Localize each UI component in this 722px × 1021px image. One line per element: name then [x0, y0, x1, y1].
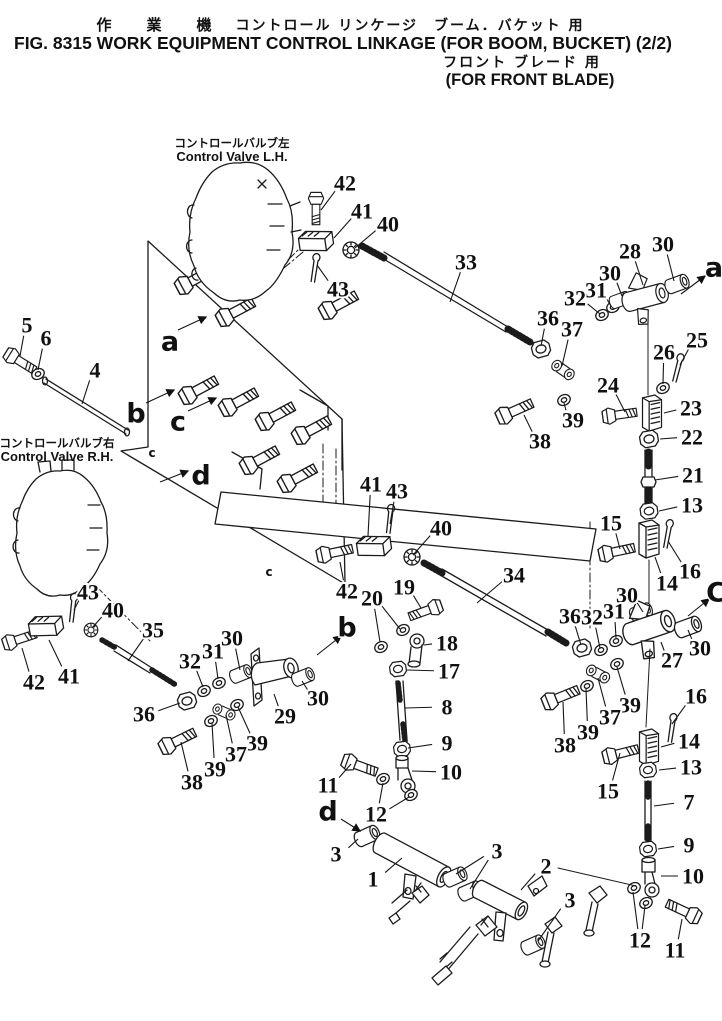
path-shape	[114, 645, 152, 673]
callout-38: 38	[524, 415, 551, 454]
part-number-label: 32	[179, 649, 201, 674]
path-shape	[189, 162, 293, 301]
view-letter-label: b	[126, 399, 145, 430]
callout-leader	[633, 892, 638, 929]
part-number-label: 11	[665, 938, 686, 963]
callout-39: 39	[562, 403, 584, 433]
valve-rh-label-jp: コントロールバルブ右	[0, 436, 115, 450]
view-arrow-icon	[146, 390, 174, 403]
valve-lh-label-jp: コントロールバルブ左	[175, 136, 290, 150]
callout-leader	[22, 648, 29, 672]
callout-36: 36	[133, 702, 180, 727]
part-number-label: 35	[142, 618, 164, 643]
view-arrow-icon	[178, 317, 206, 330]
callout-9: 9	[658, 833, 695, 858]
callout-4: 4	[82, 358, 101, 405]
callout-leader	[596, 628, 600, 648]
callout-leader	[663, 363, 664, 384]
use-shape	[343, 242, 359, 258]
callout-leader	[407, 670, 434, 671]
part-number-label: 31	[603, 599, 625, 624]
use-shape	[663, 895, 703, 926]
part-number-label: 24	[597, 373, 619, 398]
use-shape	[315, 540, 354, 564]
rod-33-group	[298, 192, 530, 342]
part-number-label: 40	[102, 598, 124, 623]
part-number-label: 16	[685, 684, 707, 709]
path-shape	[16, 470, 108, 596]
path-shape	[440, 927, 478, 972]
use-shape	[196, 683, 212, 698]
part-number-label: 12	[365, 802, 387, 827]
part-number-label: 32	[581, 605, 603, 630]
use-shape	[238, 442, 282, 477]
part-number-label: 39	[619, 693, 641, 718]
use-shape	[519, 933, 547, 956]
use-shape	[639, 430, 660, 449]
callout-31: 31	[603, 599, 625, 639]
use-shape	[593, 642, 609, 657]
part-number-label: 20	[361, 586, 383, 611]
part-number-label: 40	[377, 212, 399, 237]
callout-5: 5	[20, 313, 33, 357]
part-number-label: 38	[554, 733, 576, 758]
use-shape	[340, 752, 380, 780]
view-letter-b: b	[317, 613, 357, 656]
control-valve-rh-drawing	[13, 460, 150, 641]
part-number-label: 18	[436, 631, 458, 656]
callout-leader	[238, 707, 250, 733]
part-number-label: 7	[684, 790, 695, 815]
use-shape	[217, 384, 261, 419]
path-shape	[558, 868, 636, 886]
callout-36: 36	[537, 306, 559, 347]
use-shape	[579, 678, 595, 693]
part-number-label: 3	[331, 842, 342, 867]
callout-10: 10	[412, 760, 462, 785]
part-number-label: 12	[629, 928, 651, 953]
use-shape	[663, 273, 691, 295]
use-shape	[389, 661, 407, 678]
callout-37: 37	[225, 715, 247, 767]
use-shape	[556, 392, 572, 407]
part-number-label: 5	[22, 313, 33, 338]
use-shape	[639, 762, 657, 779]
use-shape	[228, 663, 254, 684]
part-number-label: 30	[221, 626, 243, 651]
part-number-label: 10	[682, 864, 704, 889]
ellipse-shape	[642, 858, 655, 863]
part-number-label: 30	[689, 636, 711, 661]
use-shape	[609, 656, 625, 671]
use-shape	[176, 691, 198, 711]
callout-43: 43	[317, 265, 349, 302]
part-number-label: 6	[41, 326, 52, 351]
path-shape	[398, 768, 412, 780]
callout-leader	[389, 797, 409, 809]
path-shape	[382, 252, 508, 332]
callout-leader	[334, 219, 351, 238]
callout-43: 43	[74, 580, 99, 611]
callout-3: 3	[331, 839, 359, 867]
path-shape	[589, 886, 607, 903]
callout-13: 13	[659, 493, 703, 518]
view-letter-label: d	[191, 461, 210, 492]
path-shape	[389, 913, 400, 924]
callout-leader	[477, 582, 502, 603]
callout-7: 7	[654, 790, 695, 815]
part-number-label: 33	[455, 250, 477, 275]
part-number-label: 14	[678, 729, 700, 754]
callout-leader	[236, 649, 240, 670]
use-shape	[494, 395, 536, 427]
use-shape	[254, 398, 298, 433]
part-number-label: 36	[537, 306, 559, 331]
part-number-label: 15	[597, 779, 619, 804]
use-shape	[308, 192, 323, 224]
part-number-label: 19	[393, 575, 415, 600]
part-number-label: 15	[600, 511, 622, 536]
part-number-label: 26	[653, 340, 675, 365]
part-number-label: 10	[440, 760, 462, 785]
use-shape	[407, 597, 445, 624]
use-shape	[571, 638, 593, 658]
part-number-label: 11	[318, 773, 339, 798]
callout-leader	[82, 380, 90, 404]
callout-23: 23	[664, 396, 702, 421]
tiny-ref-mark: c	[148, 446, 155, 460]
callout-leader	[38, 349, 42, 370]
callout-37: 37	[561, 317, 583, 367]
callout-leader	[216, 662, 218, 679]
part-number-label: 41	[351, 199, 373, 224]
use-shape	[404, 549, 420, 565]
callout-37: 37	[598, 678, 621, 730]
part-number-label: 41	[360, 472, 382, 497]
callout-26: 26	[653, 340, 675, 385]
part-number-label: 4	[90, 358, 101, 383]
callout-leader	[408, 744, 432, 748]
exploded-parts-diagram: 作 業 機 コントロール リンケージ ブーム．バケット 用 FIG. 8315 …	[0, 0, 722, 1021]
path-shape	[548, 632, 566, 643]
part-number-label: 16	[679, 559, 701, 584]
callout-leader	[158, 703, 180, 711]
part-number-label: 37	[225, 742, 247, 767]
callout-13: 13	[659, 755, 702, 780]
part-number-label: 41	[58, 664, 80, 689]
ellipse-shape	[408, 661, 420, 667]
callout-leader	[660, 438, 677, 439]
path-shape	[44, 379, 128, 434]
callout-leader	[661, 743, 674, 747]
callout-leader	[382, 606, 400, 629]
view-letter-d: d	[160, 461, 211, 492]
part-number-label: 8	[442, 695, 453, 720]
callout-9: 9	[408, 731, 453, 756]
callout-30: 30	[221, 626, 243, 671]
callout-27: 27	[661, 642, 683, 673]
callout-22: 22	[660, 425, 703, 450]
callout-leader	[642, 906, 645, 929]
callout-39: 39	[577, 689, 599, 745]
callout-leader	[659, 768, 676, 770]
part-number-label: 13	[681, 493, 703, 518]
part-number-label: 37	[561, 317, 583, 342]
callout-leader	[412, 771, 436, 772]
use-shape	[639, 502, 658, 519]
part-number-label: 39	[246, 731, 268, 756]
part-number-label: 30	[652, 232, 674, 257]
part-number-label: 36	[559, 604, 581, 629]
use-shape	[639, 520, 659, 558]
callout-42: 42	[336, 562, 358, 604]
path-shape	[424, 563, 442, 573]
view-letter-label: a	[705, 253, 722, 284]
part-number-label: 43	[327, 277, 349, 302]
callout-leader	[49, 640, 62, 666]
callout-leader	[667, 255, 674, 281]
view-letter-d: d	[318, 797, 360, 832]
header: 作 業 機 コントロール リンケージ ブーム．バケット 用 FIG. 8315 …	[14, 16, 672, 89]
callout-3: 3	[538, 888, 576, 942]
use-shape	[616, 267, 674, 329]
part-number-label: 2	[541, 854, 552, 879]
callout-leader	[456, 856, 484, 874]
part-number-label: 23	[680, 396, 702, 421]
part-number-label: 9	[442, 731, 453, 756]
callout-29: 29	[274, 694, 296, 729]
use-shape	[203, 713, 219, 728]
callout-39: 39	[204, 723, 226, 782]
use-shape	[393, 741, 411, 758]
callout-leader	[181, 742, 188, 771]
callout-leader	[617, 667, 625, 695]
part-number-label: 38	[529, 429, 551, 454]
callout-41: 41	[334, 199, 373, 239]
part-number-label: 42	[336, 579, 358, 604]
valve-lh-label-en: Control Valve L.H.	[176, 149, 287, 164]
tiny-ref-mark: c	[265, 565, 272, 579]
callout-30: 30	[652, 232, 674, 282]
use-shape	[638, 895, 654, 910]
callout-leader	[424, 644, 432, 645]
callout-leader	[678, 919, 682, 939]
part-number-label: 39	[204, 757, 226, 782]
part-number-label: 39	[562, 408, 584, 433]
callout-14: 14	[655, 557, 678, 596]
part-number-label: 36	[133, 702, 155, 727]
valve-rh-label-en: Control Valve R.H.	[1, 449, 114, 464]
callout-38: 38	[554, 702, 576, 758]
path-shape	[362, 246, 384, 258]
part-number-label: 9	[684, 833, 695, 858]
callout-leader	[654, 803, 674, 806]
callout-leader	[588, 304, 600, 314]
part-number-label: 43	[386, 479, 408, 504]
circle-shape	[645, 883, 659, 897]
callout-leader	[20, 336, 24, 356]
callout-leader	[664, 410, 676, 413]
path-shape	[645, 872, 655, 884]
callout-10: 10	[661, 864, 704, 889]
path-shape	[432, 966, 452, 985]
view-letter-b: b	[126, 390, 174, 430]
callout-41: 41	[49, 640, 80, 689]
path-shape	[646, 649, 650, 727]
part-number-label: 29	[274, 704, 296, 729]
use-shape	[540, 681, 582, 712]
use-shape	[298, 228, 335, 255]
use-shape	[157, 724, 199, 757]
rod-4-group	[1, 345, 129, 436]
view-letter-label: C	[706, 578, 722, 609]
path-shape	[102, 640, 116, 648]
callout-30: 30	[302, 681, 329, 711]
part-number-label: 21	[682, 463, 704, 488]
part-number-label: 3	[492, 839, 503, 864]
ellipse-shape	[396, 756, 408, 761]
callout-21: 21	[655, 463, 704, 488]
callout-leader	[379, 783, 383, 803]
callout-15: 15	[600, 511, 622, 550]
callout-11: 11	[665, 919, 686, 963]
use-shape	[373, 639, 389, 654]
callout-19: 19	[393, 575, 421, 609]
part-number-label: 17	[438, 659, 460, 684]
part-number-label: 14	[656, 571, 678, 596]
use-shape	[84, 623, 98, 637]
callout-leader	[655, 476, 678, 480]
callout-leader	[562, 340, 568, 366]
callout-leader	[212, 723, 214, 758]
callout-14: 14	[661, 729, 700, 754]
part-number-label: 22	[681, 425, 703, 450]
callout-leader	[659, 507, 677, 511]
use-shape	[640, 729, 659, 765]
part-number-label: 37	[599, 705, 621, 730]
path-shape	[152, 670, 176, 685]
ellipse-shape	[540, 961, 550, 967]
part-number-label: 39	[577, 720, 599, 745]
view-letter-label: a	[161, 327, 179, 358]
ellipse-shape	[584, 930, 594, 936]
view-letter-a: a	[161, 317, 206, 358]
use-shape	[660, 519, 674, 548]
view-letter-c: c	[170, 398, 216, 438]
part-number-label: 38	[181, 770, 203, 795]
part-number-label: 32	[564, 286, 586, 311]
parts-catalog-page: 作 業 機 コントロール リンケージ ブーム．バケット 用 FIG. 8315 …	[0, 0, 722, 1021]
use-shape	[665, 713, 678, 742]
view-arrow-icon	[341, 819, 360, 831]
callout-leader	[375, 609, 380, 642]
part-number-label: 42	[23, 670, 45, 695]
part-number-label: 3	[565, 888, 576, 913]
title-jp-linkage: コントロール リンケージ ブーム．バケット 用	[235, 17, 584, 34]
path-shape	[586, 902, 598, 932]
part-number-label: 34	[503, 563, 525, 588]
part-number-label: 28	[619, 239, 641, 264]
callout-32: 32	[179, 649, 203, 688]
part-number-label: 42	[334, 171, 356, 196]
use-shape	[601, 741, 640, 766]
use-shape	[276, 460, 320, 495]
callout-38: 38	[181, 742, 203, 795]
part-number-label: 27	[661, 648, 683, 673]
callout-34: 34	[477, 563, 525, 604]
subtitle-en: (FOR FRONT BLADE)	[446, 71, 615, 89]
callout-leader	[405, 707, 432, 708]
title-jp-machine: 作 業 機	[96, 16, 221, 34]
use-shape	[27, 612, 64, 640]
part-number-label: 25	[686, 328, 708, 353]
path-shape	[641, 477, 656, 487]
path-shape	[440, 569, 548, 636]
use-shape	[643, 395, 662, 431]
callout-6: 6	[38, 326, 52, 371]
part-number-label: 30	[307, 686, 329, 711]
part-number-label: 31	[585, 278, 607, 303]
view-letter-label: c	[170, 407, 186, 438]
subtitle-jp: フロント ブレード 用	[443, 54, 601, 71]
control-valve-lh-drawing	[187, 162, 305, 301]
callout-18: 18	[424, 631, 458, 656]
use-shape	[290, 412, 334, 447]
callout-leader	[658, 846, 674, 849]
path-shape	[508, 329, 530, 342]
callout-leader	[586, 689, 587, 721]
use-shape	[211, 675, 227, 690]
callout-24: 24	[597, 373, 625, 413]
figure-title: FIG. 8315 WORK EQUIPMENT CONTROL LINKAGE…	[14, 33, 672, 53]
use-shape	[602, 404, 638, 425]
part-number-label: 1	[368, 867, 379, 892]
callout-11: 11	[318, 764, 351, 798]
use-shape	[597, 539, 636, 563]
use-shape	[177, 372, 221, 407]
callout-8: 8	[405, 695, 453, 720]
callout-1: 1	[368, 858, 403, 892]
callout-leader	[563, 702, 564, 734]
use-shape	[626, 880, 642, 895]
callout-30: 30	[688, 630, 711, 661]
view-letter-label: b	[337, 613, 356, 644]
part-number-label: 43	[77, 580, 99, 605]
use-shape	[639, 841, 657, 858]
view-letter-label: d	[318, 797, 337, 828]
callout-42: 42	[22, 648, 45, 695]
part-number-label: 13	[680, 755, 702, 780]
part-number-label: 40	[430, 516, 452, 541]
